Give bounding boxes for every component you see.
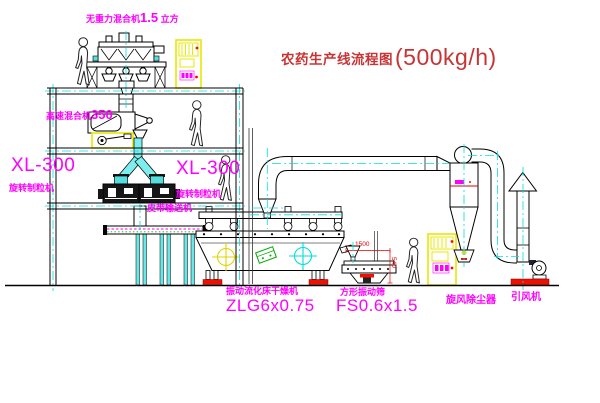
title-text: 农药生产线流程图 [281, 53, 393, 70]
label-granulator-left-name: 旋转制粒机 [9, 184, 54, 193]
vibrating-screen [342, 231, 396, 283]
worker-figure-4 [407, 238, 420, 283]
dim-width-label: 1500 [355, 242, 369, 249]
granulator-right [139, 174, 180, 203]
induced-draft-fan [511, 260, 549, 286]
control-cabinet-top [176, 40, 201, 88]
dim-height-label: 540 [390, 257, 397, 268]
label-dryer-name: 振动流化床干燥机 [226, 287, 298, 296]
granulator-left [98, 174, 139, 203]
label-granulator-right-model: XL-300 [176, 159, 240, 178]
label-cyclone: 旋风除尘器 [446, 296, 496, 306]
label-granulator-right-name: 旋转制粒机 [176, 190, 221, 199]
worker-figure-1 [76, 38, 90, 85]
diagram-title: 农药生产线流程图 (500kg/h) [281, 46, 497, 69]
label-dryer-model: ZLG6x0.75 [226, 297, 315, 314]
label-granulator-left-model: XL-300 [11, 156, 75, 175]
label-zero-gravity-mixer: 无重力混合机1.5 立方 [86, 11, 179, 24]
title-capacity: (500kg/h) [395, 46, 497, 69]
worker-figure-2 [190, 101, 203, 146]
label-draft-fan: 引风机 [511, 293, 541, 303]
label-high-speed-mixer: 高速混合机350 [46, 108, 113, 121]
label-belt-conveyor: 皮带输送机 [147, 204, 192, 213]
inlet-elbow-duct [259, 157, 288, 219]
fluid-bed-dryer [196, 207, 353, 285]
flow-diagram-canvas: 农药生产线流程图 (500kg/h) 无重力混合机1.5 立方 高速混合机350… [0, 0, 600, 403]
belt-conveyor [103, 225, 207, 285]
label-screen-model: FS0.6x1.5 [336, 297, 418, 314]
control-cabinet-right [428, 234, 456, 285]
